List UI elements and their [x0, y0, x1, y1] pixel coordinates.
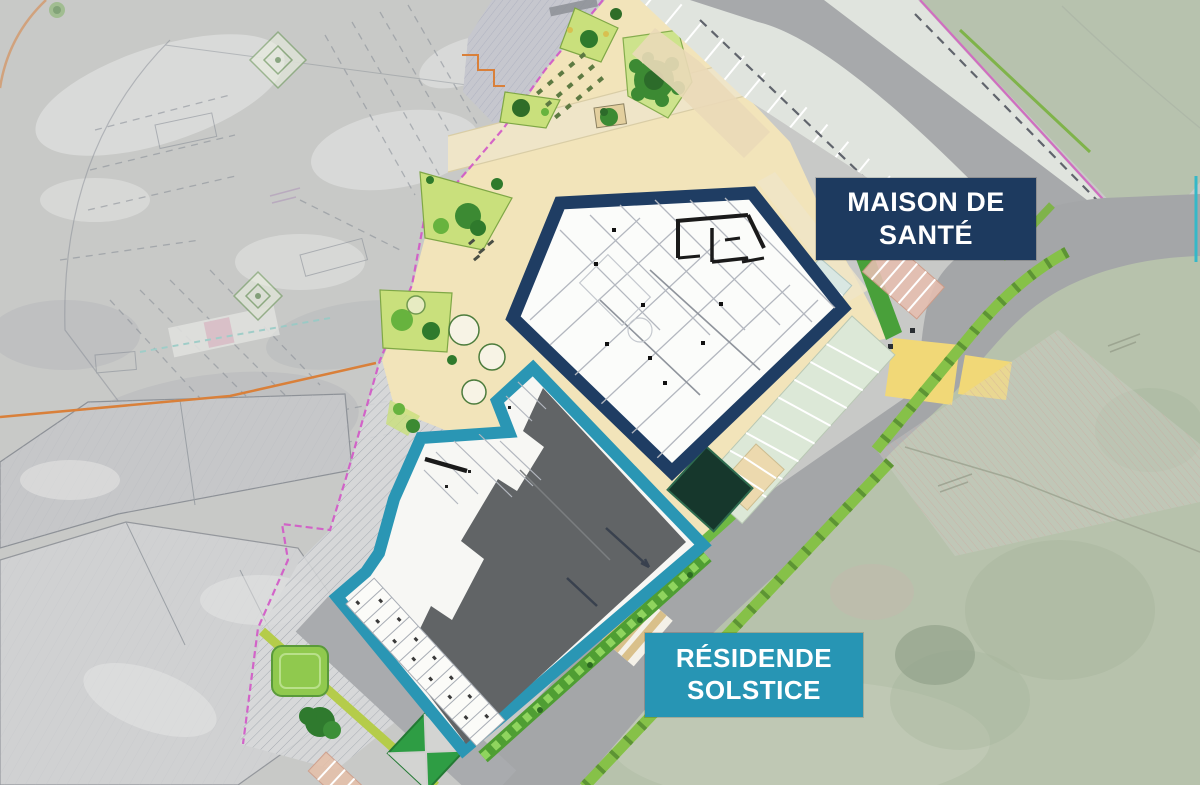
residence-solstice-label: RÉSIDENDE SOLSTICE	[645, 633, 863, 717]
site-plan-page: MAISON DE SANTÉ RÉSIDENDE SOLSTICE	[0, 0, 1200, 785]
maison-label-line2: SANTÉ	[879, 219, 973, 252]
field-tree-blob	[895, 625, 975, 685]
maison-label-line1: MAISON DE	[847, 186, 1005, 219]
site-plan-drawing	[0, 0, 1200, 785]
play-square	[272, 646, 328, 696]
residence-label-line2: SOLSTICE	[687, 675, 821, 707]
maison-de-sante-label: MAISON DE SANTÉ	[816, 178, 1036, 260]
residence-label-line1: RÉSIDENDE	[676, 643, 832, 675]
